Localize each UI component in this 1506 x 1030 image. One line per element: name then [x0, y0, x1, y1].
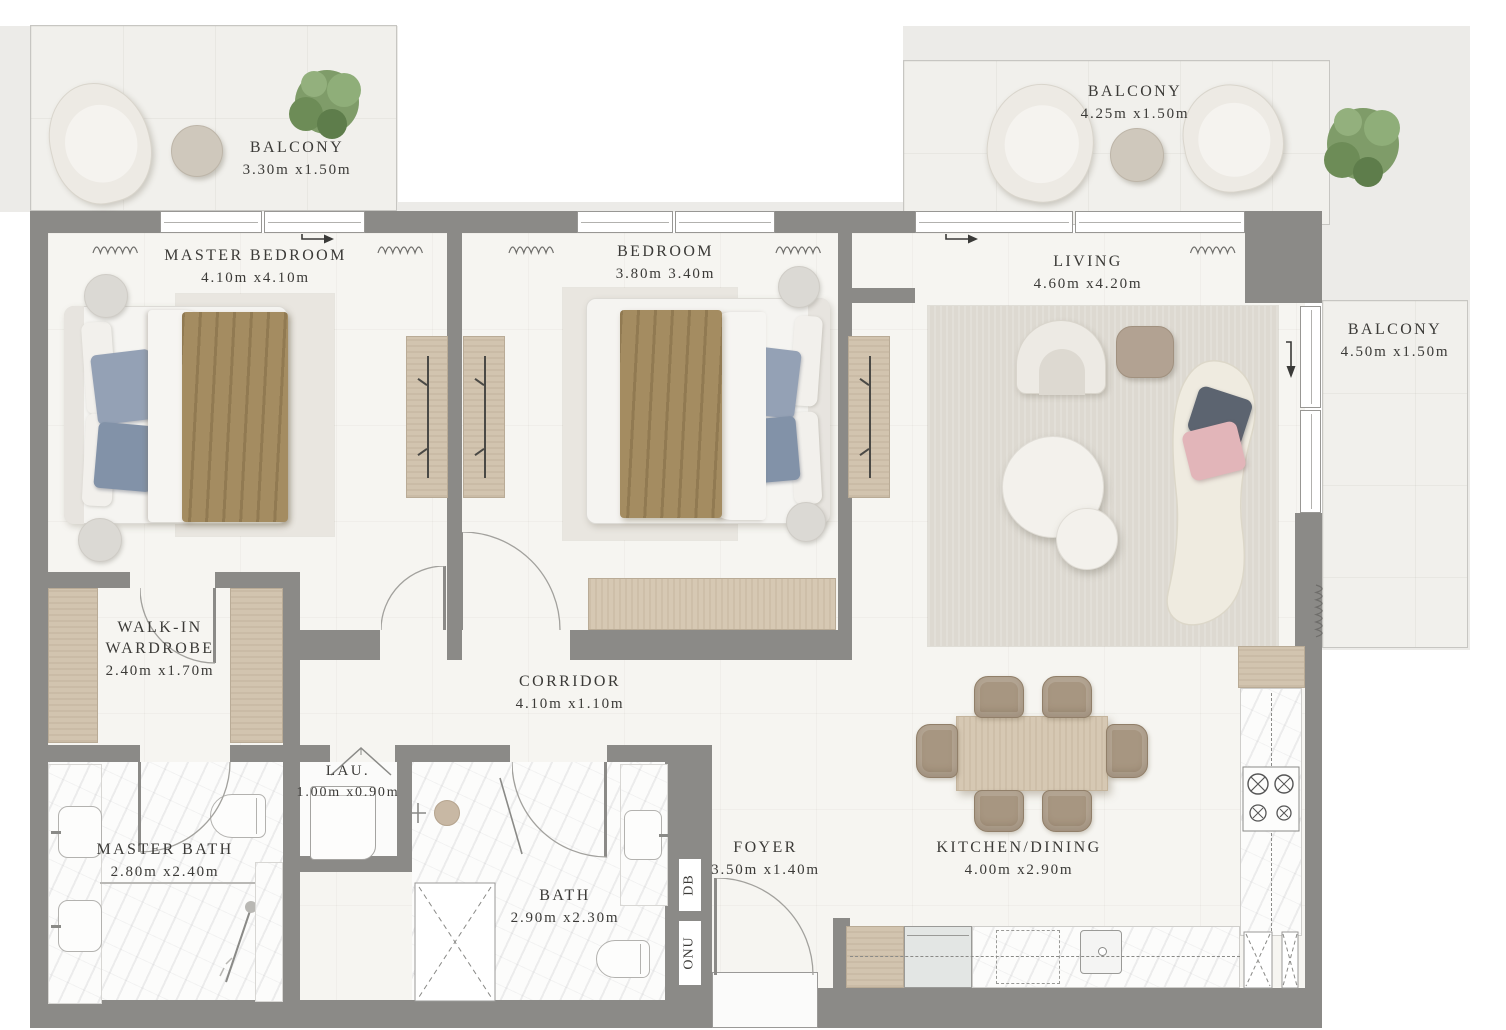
kitchen-cabinet-top-right: [1238, 646, 1305, 688]
round-stool: [78, 518, 122, 562]
label-bath: BATH 2.90m x2.30m: [458, 886, 672, 928]
window-living-1: [915, 211, 1073, 233]
coffee-table-small: [1056, 508, 1118, 570]
label-living: LIVING 4.60m x4.20m: [973, 252, 1203, 294]
room-name: MASTER BATH: [58, 840, 272, 861]
shower-wand-icon: [218, 898, 258, 990]
window-master-bedroom-1: [160, 211, 262, 233]
wardrobe-rail: [869, 356, 871, 478]
wall-left-outer: [30, 211, 48, 1028]
outside-cutout: [398, 26, 903, 202]
room-dims: 2.90m x2.30m: [458, 909, 672, 929]
room-dims: 3.80m 3.40m: [548, 265, 783, 285]
bed-blanket: [182, 312, 288, 522]
wall-living-stub: [852, 288, 915, 303]
dishwasher-dashed: [996, 930, 1060, 984]
room-name: LAU.: [290, 762, 406, 782]
wall: [30, 572, 130, 588]
room-name: BALCONY: [187, 138, 407, 159]
wall: [365, 211, 577, 233]
upper-cabinet-dashline-bottom: [850, 956, 1240, 957]
floor-plan: DB ONU: [0, 0, 1506, 1030]
kitchen-cabinet-bottom: [846, 926, 904, 988]
room-dims: 4.10m x1.10m: [458, 695, 682, 715]
wall: [395, 745, 510, 762]
label-master-bedroom: MASTER BEDROOM 4.10m x4.10m: [128, 246, 383, 288]
label-kitchen-dining: KITCHEN/DINING 4.00m x2.90m: [893, 838, 1145, 880]
faucet: [659, 834, 669, 837]
tall-cabinet-x-icon: [1281, 931, 1299, 989]
bed-blanket: [620, 310, 722, 518]
dining-chair: [916, 724, 958, 778]
room-name: BALCONY: [1324, 320, 1466, 341]
armchair-seat-notch: [1039, 349, 1085, 395]
wardrobe-rail: [484, 356, 486, 478]
label-bedroom: BEDROOM 3.80m 3.40m: [548, 242, 783, 284]
room-dims: 4.60m x4.20m: [973, 275, 1203, 295]
living-coat-panel: [848, 336, 890, 498]
toilet-tank-line: [256, 798, 257, 834]
room-name: CORRIDOR: [458, 672, 682, 693]
window-bedroom-1: [577, 211, 673, 233]
toilet-icon: [596, 940, 650, 978]
door-swing-icon: [512, 762, 608, 858]
direction-arrow-icon: [944, 232, 980, 246]
sink-icon: [624, 810, 662, 860]
stove-icon: [1242, 766, 1300, 832]
fridge-door-line: [907, 935, 969, 936]
wall: [607, 745, 665, 762]
room-name: FOYER: [688, 838, 843, 859]
armchair-cushion: [57, 97, 146, 190]
room-dims: 4.00m x2.90m: [893, 861, 1145, 881]
onu-label: ONU: [682, 936, 698, 969]
room-dims: 2.80m x2.40m: [58, 863, 272, 883]
label-balcony-right: BALCONY 4.50m x1.50m: [1324, 320, 1466, 362]
toilet-tank-line: [640, 944, 641, 974]
wardrobe-bedroom: [463, 336, 505, 498]
window-bedroom-2: [675, 211, 775, 233]
room-name: KITCHEN/DINING: [893, 838, 1145, 859]
faucet: [51, 831, 61, 834]
room-dims: 3.30m x1.50m: [187, 161, 407, 181]
dining-chair: [1042, 790, 1092, 832]
label-walk-in-wardrobe: WALK-IN WARDROBE 2.40m x1.70m: [72, 618, 248, 681]
dining-chair: [974, 676, 1024, 718]
master-bath-counter: [48, 764, 102, 1004]
wall-bottom-left: [30, 1000, 712, 1028]
label-corridor: CORRIDOR 4.10m x1.10m: [458, 672, 682, 714]
wall: [1245, 211, 1322, 303]
wall-kitchen-right: [1305, 650, 1322, 988]
dining-chair: [1042, 676, 1092, 718]
entry-door-swing-icon: [716, 878, 814, 976]
entry-threshold: [712, 972, 818, 1028]
master-bath-shelf: [255, 862, 283, 1002]
room-name: BATH: [458, 886, 672, 907]
label-balcony-top-left: BALCONY 3.30m x1.50m: [187, 138, 407, 180]
direction-arrow-icon: [300, 232, 336, 246]
plant-icon: [284, 62, 370, 146]
wall-bottom-right: [818, 988, 1322, 1028]
dining-chair: [974, 790, 1024, 832]
label-laundry: LAU. 1.00m x0.90m: [290, 762, 406, 802]
wall: [570, 630, 838, 660]
faucet: [51, 925, 61, 928]
faucet: [1098, 947, 1107, 956]
direction-arrow-icon: [1284, 340, 1298, 380]
window-right-balcony-2: [1300, 410, 1321, 513]
window-living-2: [1075, 211, 1245, 233]
plant-icon: [1318, 94, 1408, 198]
round-stool: [778, 266, 820, 308]
kitchen-sink: [1080, 930, 1122, 974]
window-master-bedroom-2: [264, 211, 365, 233]
room-dims: 1.00m x0.90m: [290, 784, 406, 802]
dining-table: [956, 716, 1108, 791]
room-dims: 4.25m x1.50m: [1018, 105, 1252, 125]
tall-cabinet-x-icon: [1243, 931, 1273, 989]
wall: [230, 745, 330, 762]
door-swing-icon: [381, 566, 447, 632]
room-name: BEDROOM: [548, 242, 783, 263]
bath-basin-icon: [434, 800, 460, 826]
curtain-squiggle-icon: [1313, 582, 1328, 642]
room-dims: 2.40m x1.70m: [72, 662, 248, 682]
sink-icon: [58, 900, 102, 952]
room-name: MASTER BEDROOM: [128, 246, 383, 267]
faucet-cross-icon: [408, 800, 428, 826]
room-name: WARDROBE: [72, 639, 248, 660]
room-name: BALCONY: [1018, 82, 1252, 103]
room-name: WALK-IN: [72, 618, 248, 639]
room-dims: 4.50m x1.50m: [1324, 343, 1466, 363]
label-master-bath: MASTER BATH 2.80m x2.40m: [58, 840, 272, 882]
dining-chair: [1106, 724, 1148, 778]
label-balcony-top-right: BALCONY 4.25m x1.50m: [1018, 82, 1252, 124]
door-swing-icon: [462, 532, 562, 632]
wall: [30, 211, 160, 233]
round-stool: [786, 502, 826, 542]
round-stool: [84, 274, 128, 318]
balcony-table: [1110, 128, 1164, 182]
wall: [300, 630, 380, 660]
kitchen-fridge: [904, 926, 972, 988]
wall: [48, 745, 140, 762]
onu-niche: ONU: [678, 920, 702, 986]
wardrobe-master: [406, 336, 448, 498]
wardrobe-rail: [427, 356, 429, 478]
wall: [775, 211, 915, 233]
room-dims: 3.50m x1.40m: [688, 861, 843, 881]
room-name: LIVING: [973, 252, 1203, 273]
room-dims: 4.10m x4.10m: [128, 269, 383, 289]
window-right-balcony-1: [1300, 306, 1321, 408]
label-foyer: FOYER 3.50m x1.40m: [688, 838, 843, 880]
bedroom-dresser: [588, 578, 836, 630]
